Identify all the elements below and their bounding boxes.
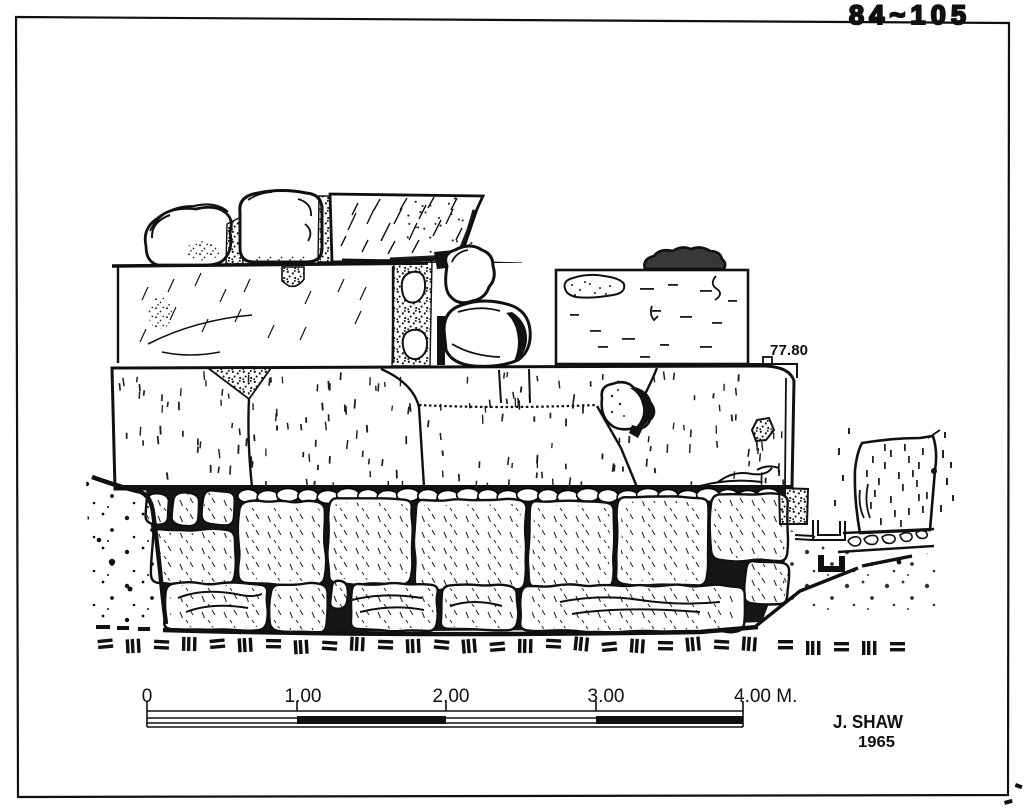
svg-text:84~105: 84~105 — [849, 0, 967, 30]
svg-text:0: 0 — [142, 686, 153, 707]
svg-text:1965: 1965 — [858, 734, 895, 751]
svg-text:4.00 M.: 4.00 M. — [734, 686, 797, 707]
svg-text:1.00: 1.00 — [285, 686, 322, 707]
svg-text:2.00: 2.00 — [433, 686, 470, 707]
svg-text:J. SHAW: J. SHAW — [833, 712, 903, 732]
svg-text:3.00: 3.00 — [588, 686, 625, 707]
svg-text:77.80: 77.80 — [770, 342, 808, 359]
